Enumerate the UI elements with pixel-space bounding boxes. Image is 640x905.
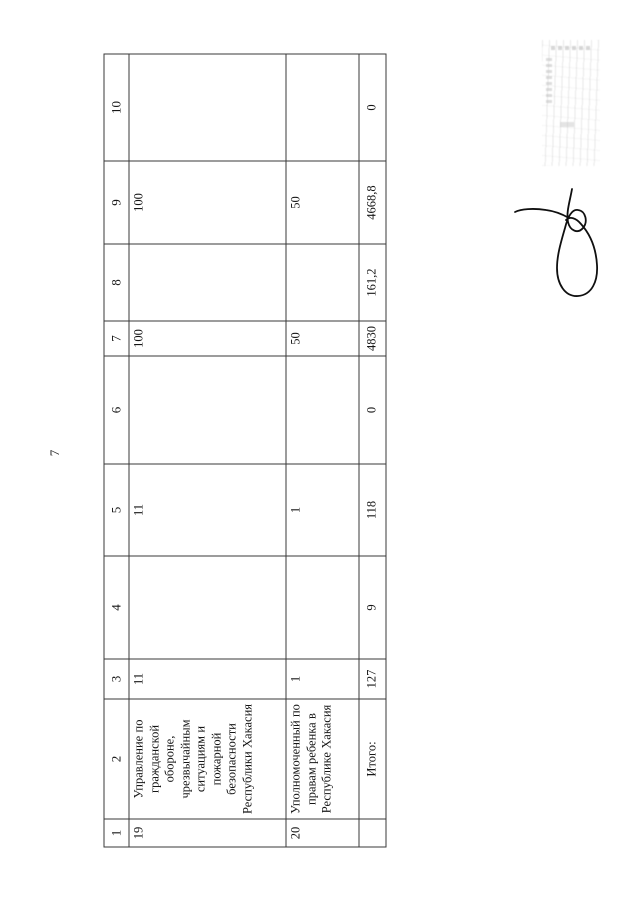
stamp-mark (560, 122, 574, 127)
total-value-cell: 161,2 (359, 244, 386, 321)
value-cell (129, 54, 286, 161)
illegible-stamp-icon (542, 40, 600, 166)
table-total-row: Итого: 127 9 118 0 4830 161,2 4668,8 0 (359, 54, 386, 847)
scanned-document-page: 7 1 2 3 4 5 6 7 8 9 10 (0, 0, 640, 905)
stamp-mark (551, 46, 591, 50)
data-table: 1 2 3 4 5 6 7 8 9 10 19 Управление по гр… (104, 54, 387, 848)
value-cell: 11 (129, 659, 286, 699)
total-value-cell: 4668,8 (359, 161, 386, 244)
value-cell: 11 (129, 464, 286, 556)
header-cell: 5 (104, 464, 129, 556)
page-number: 7 (47, 440, 67, 466)
value-cell (286, 54, 359, 161)
table-row: 19 Управление по гражданской обороне, чр… (129, 54, 286, 847)
value-cell (129, 244, 286, 321)
org-name-cell: Управление по гражданской обороне, чрезв… (129, 699, 286, 819)
row-number-cell: 20 (286, 819, 359, 847)
total-value-cell: 127 (359, 659, 386, 699)
rotated-table-container: 1 2 3 4 5 6 7 8 9 10 19 Управление по гр… (104, 55, 386, 848)
value-cell (129, 556, 286, 659)
header-cell: 6 (104, 356, 129, 464)
value-cell (286, 356, 359, 464)
total-value-cell: 4830 (359, 321, 386, 356)
table-row: 20 Уполномоченный по правам ребенка в Ре… (286, 54, 359, 847)
header-cell: 4 (104, 556, 129, 659)
org-name-cell: Уполномоченный по правам ребенка в Респу… (286, 699, 359, 819)
value-cell: 1 (286, 659, 359, 699)
header-cell: 8 (104, 244, 129, 321)
value-cell: 50 (286, 321, 359, 356)
stamp-mark (546, 58, 552, 104)
header-cell: 2 (104, 699, 129, 819)
value-cell: 100 (129, 161, 286, 244)
total-value-cell: 0 (359, 54, 386, 161)
handwritten-signature-icon (488, 178, 628, 308)
value-cell: 100 (129, 321, 286, 356)
value-cell (129, 356, 286, 464)
total-value-cell: 9 (359, 556, 386, 659)
row-number-cell (359, 819, 386, 847)
value-cell: 1 (286, 464, 359, 556)
value-cell (286, 556, 359, 659)
header-cell: 1 (104, 819, 129, 847)
header-cell: 9 (104, 161, 129, 244)
total-value-cell: 0 (359, 356, 386, 464)
total-value-cell: 118 (359, 464, 386, 556)
value-cell (286, 244, 359, 321)
header-cell: 10 (104, 54, 129, 161)
total-label-cell: Итого: (359, 699, 386, 819)
row-number-cell: 19 (129, 819, 286, 847)
value-cell: 50 (286, 161, 359, 244)
table-header-row: 1 2 3 4 5 6 7 8 9 10 (104, 54, 129, 847)
header-cell: 7 (104, 321, 129, 356)
header-cell: 3 (104, 659, 129, 699)
